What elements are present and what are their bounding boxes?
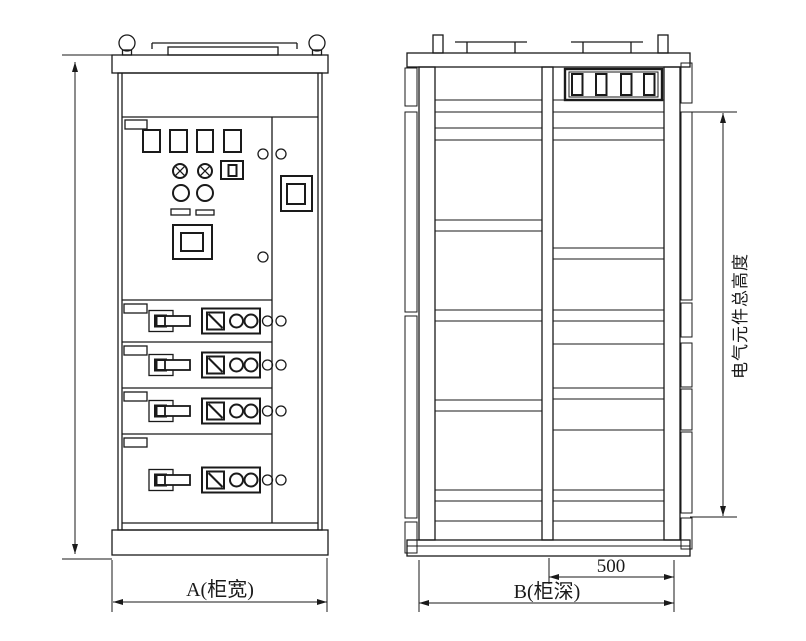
feeder-row bbox=[149, 309, 286, 334]
lifting-bars-side bbox=[455, 42, 643, 53]
cabinet-depth-label: B(柜深) bbox=[514, 580, 581, 603]
lifting-bar bbox=[152, 43, 297, 55]
pushbutton-icon bbox=[197, 185, 213, 201]
feeder-row bbox=[149, 468, 286, 493]
technical-drawing: A(柜宽) 500 B(柜深) 电气元件总高度 bbox=[0, 0, 806, 641]
indicator-window-icon bbox=[170, 130, 187, 152]
front-plinth bbox=[112, 530, 328, 555]
signal-lamp-icon bbox=[173, 164, 187, 178]
lifting-eye-stem bbox=[658, 35, 668, 53]
front-body-inner-walls bbox=[122, 73, 318, 530]
nameplate bbox=[125, 120, 147, 129]
vent-slot-icon bbox=[621, 74, 632, 95]
cabinet-width-label: A(柜宽) bbox=[186, 578, 254, 601]
indicator-window-icon bbox=[224, 130, 241, 152]
signal-lamp-icon bbox=[198, 164, 212, 178]
dim-cabinet-depth: B(柜深) bbox=[419, 560, 674, 612]
frame-post-middle bbox=[542, 67, 553, 540]
door-knob-icon bbox=[276, 149, 286, 159]
meter bbox=[173, 225, 212, 259]
lifting-eye-left-icon bbox=[119, 35, 135, 55]
depth-500-label: 500 bbox=[597, 556, 626, 577]
label-strip bbox=[196, 210, 214, 215]
instrument-panel bbox=[125, 120, 312, 262]
row-nameplate bbox=[124, 438, 147, 447]
door-knob-icon bbox=[258, 149, 268, 159]
pushbutton-icon bbox=[173, 185, 189, 201]
rear-bay-rails bbox=[553, 100, 664, 521]
front-view bbox=[112, 35, 328, 555]
front-top-rail bbox=[112, 55, 328, 73]
row-nameplate bbox=[124, 304, 147, 313]
dim-component-height: 电气元件总高度 bbox=[690, 112, 750, 517]
vent-slot-icon bbox=[572, 74, 583, 95]
feeder-row bbox=[149, 399, 286, 424]
feeder-row bbox=[149, 353, 286, 378]
selector-switch-icon bbox=[221, 161, 243, 179]
door-knob-icon bbox=[258, 252, 268, 262]
vent-slot-icon bbox=[644, 74, 655, 95]
component-height-label: 电气元件总高度 bbox=[731, 253, 750, 379]
dim-depth-500: 500 bbox=[549, 556, 674, 584]
vent-slot-icon bbox=[596, 74, 607, 95]
side-top-rail bbox=[407, 53, 690, 67]
dim-overall-height bbox=[62, 55, 112, 559]
side-view bbox=[405, 35, 692, 556]
row-nameplate bbox=[124, 392, 147, 401]
frame-post-rear bbox=[664, 67, 680, 540]
lifting-eye-stem bbox=[433, 35, 443, 53]
lifting-eye-right-icon bbox=[309, 35, 325, 55]
frame-post-front bbox=[419, 67, 435, 540]
dim-cabinet-width: A(柜宽) bbox=[112, 558, 327, 612]
row-nameplate bbox=[124, 346, 147, 355]
label-strip bbox=[171, 209, 190, 215]
side-base bbox=[407, 540, 690, 556]
door-handle bbox=[281, 176, 312, 211]
indicator-window-icon bbox=[143, 130, 160, 152]
vent-grille bbox=[565, 69, 662, 100]
front-bay-rails bbox=[435, 100, 542, 521]
front-edge-strip bbox=[405, 68, 417, 553]
indicator-window-icon bbox=[197, 130, 213, 152]
front-row-dividers bbox=[122, 300, 272, 434]
front-body bbox=[118, 73, 322, 530]
rear-edge-strip bbox=[681, 63, 692, 549]
